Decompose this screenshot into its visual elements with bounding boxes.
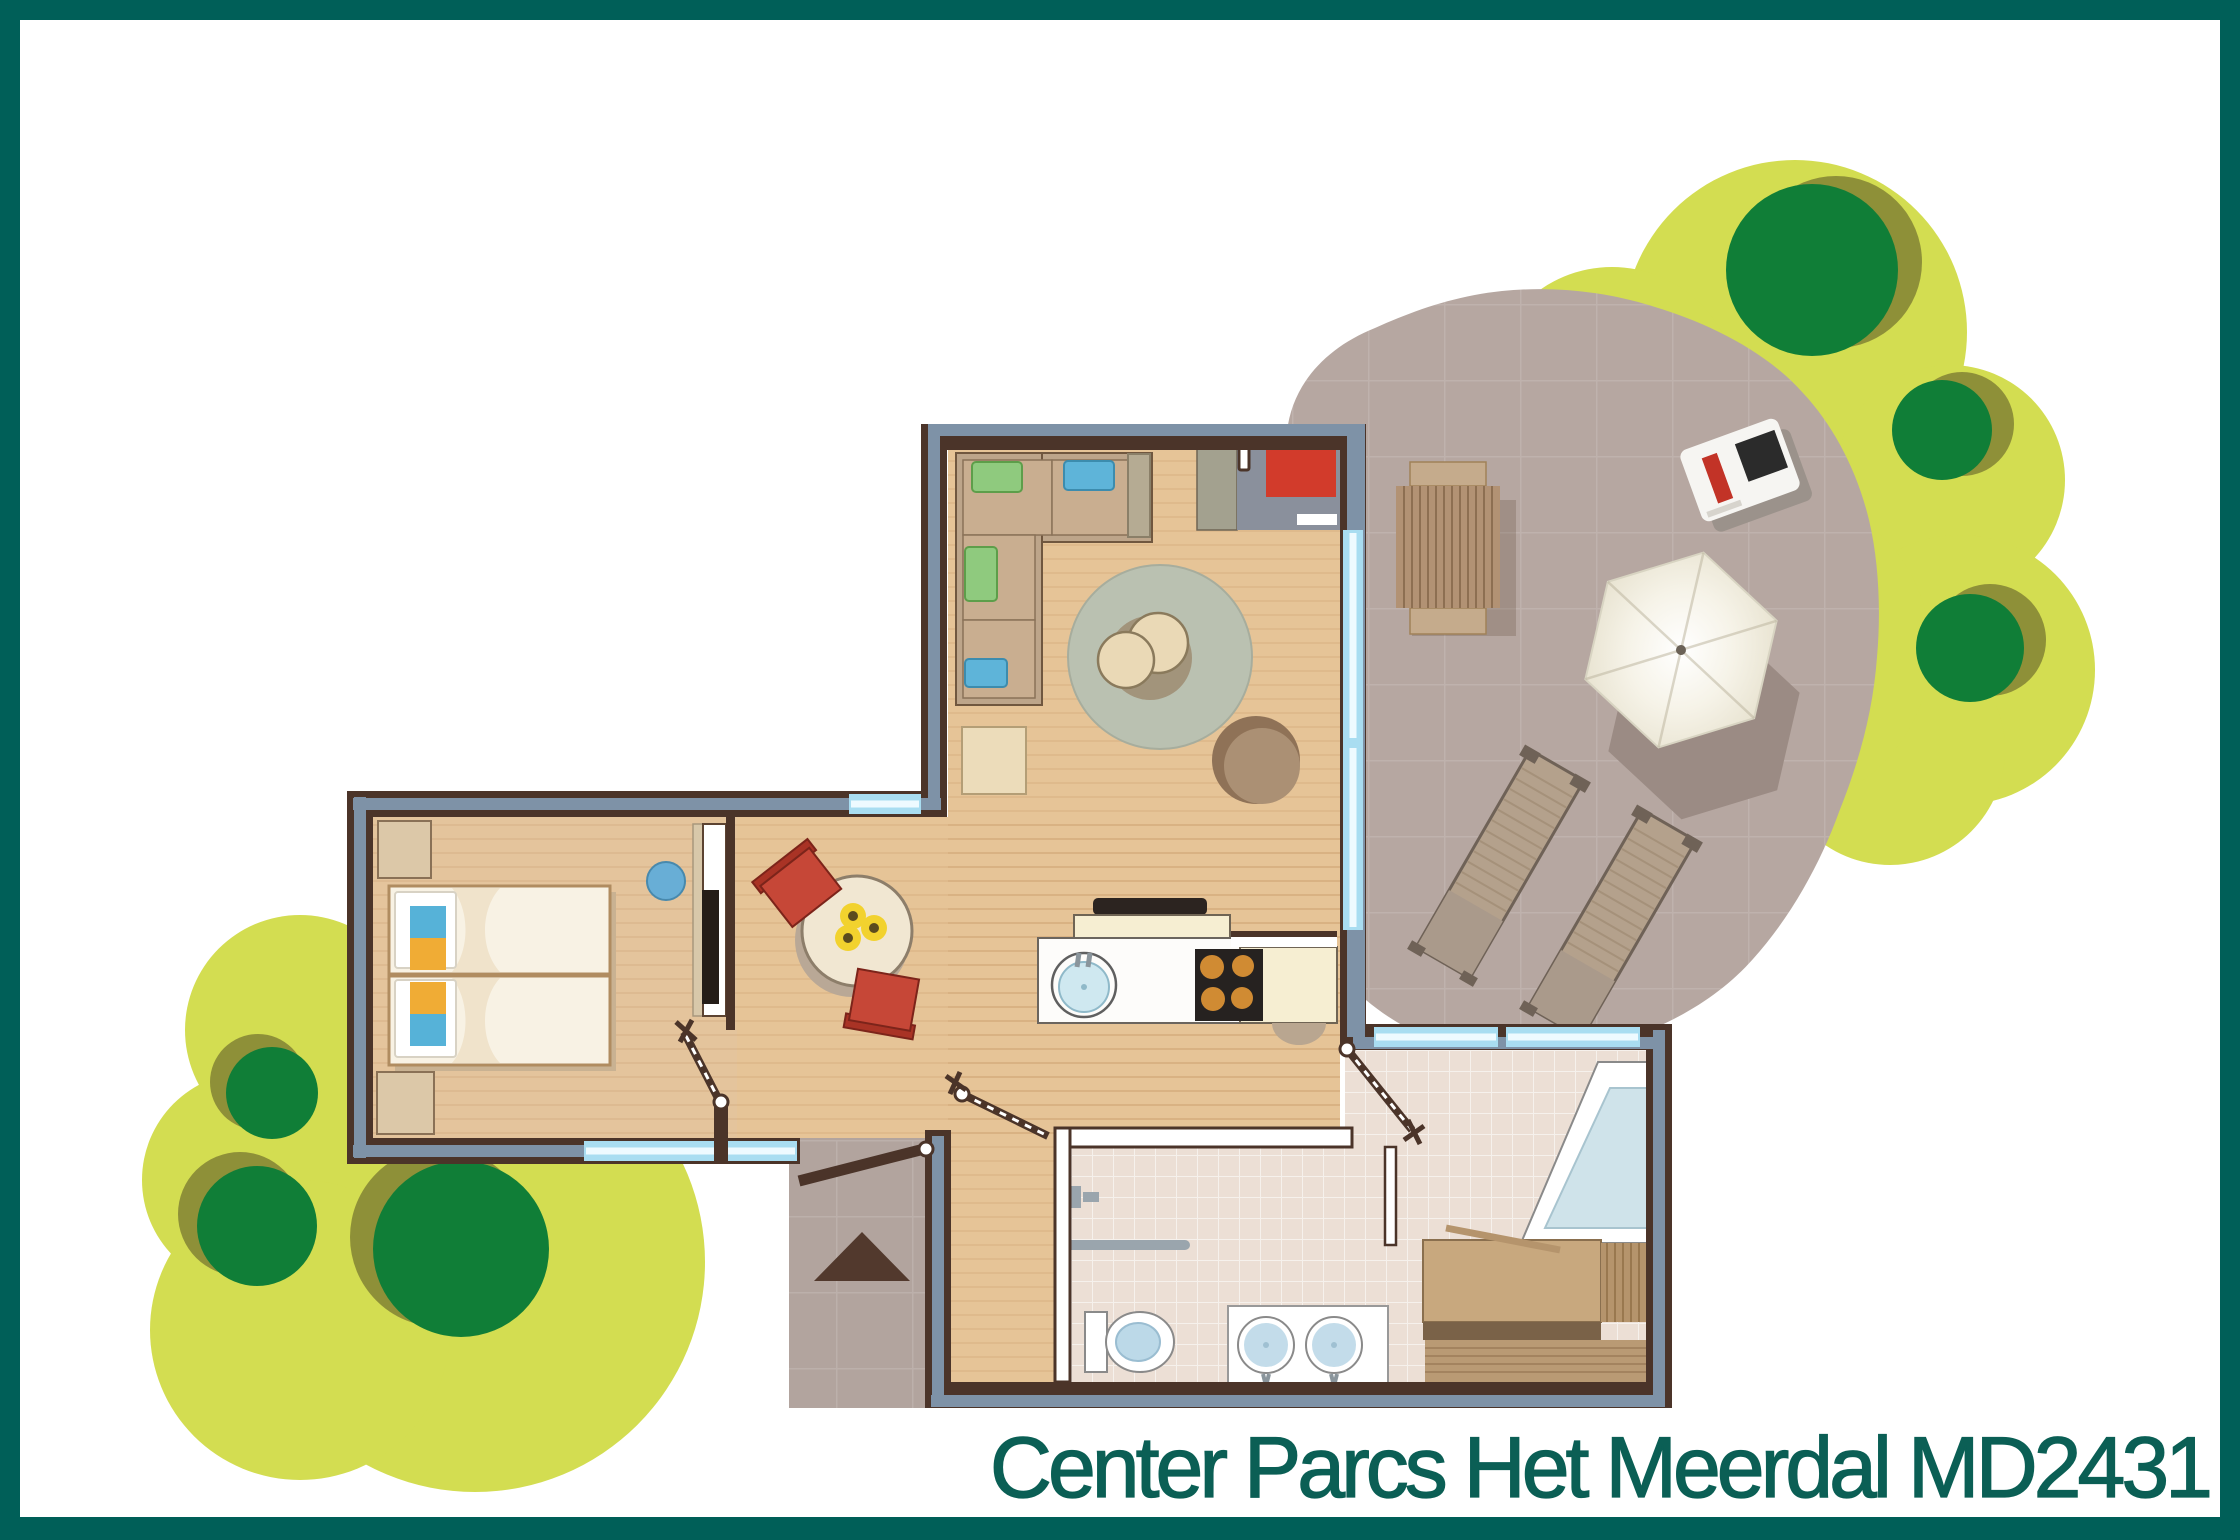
svg-text:Center Parcs Het Meerdal MD243: Center Parcs Het Meerdal MD2431 <box>990 1420 2209 1516</box>
